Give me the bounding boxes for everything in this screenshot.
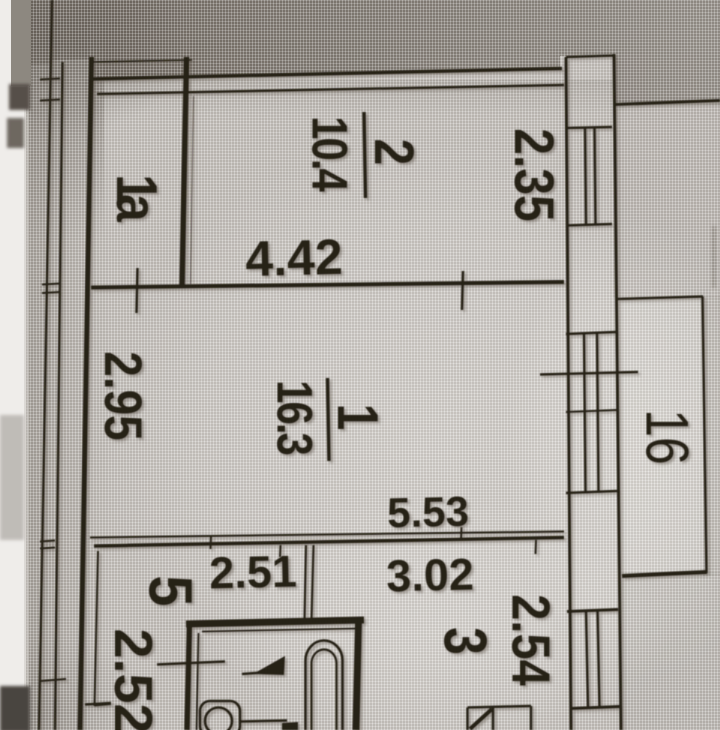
svg-text:1: 1 [325, 404, 389, 431]
svg-text:2.35: 2.35 [503, 128, 565, 221]
svg-text:10.4: 10.4 [302, 116, 358, 192]
svg-text:2.95: 2.95 [93, 351, 153, 441]
svg-text:2.54: 2.54 [501, 594, 562, 685]
svg-text:5.53: 5.53 [387, 488, 470, 537]
svg-text:3: 3 [431, 627, 498, 655]
svg-text:2.52: 2.52 [103, 628, 163, 730]
svg-text:16: 16 [633, 409, 700, 465]
svg-text:5: 5 [136, 575, 204, 606]
svg-text:4.42: 4.42 [245, 229, 344, 287]
svg-text:2: 2 [363, 139, 425, 166]
svg-text:3.02: 3.02 [386, 549, 475, 602]
svg-text:16.3: 16.3 [267, 380, 323, 455]
svg-text:2.51: 2.51 [209, 546, 298, 599]
